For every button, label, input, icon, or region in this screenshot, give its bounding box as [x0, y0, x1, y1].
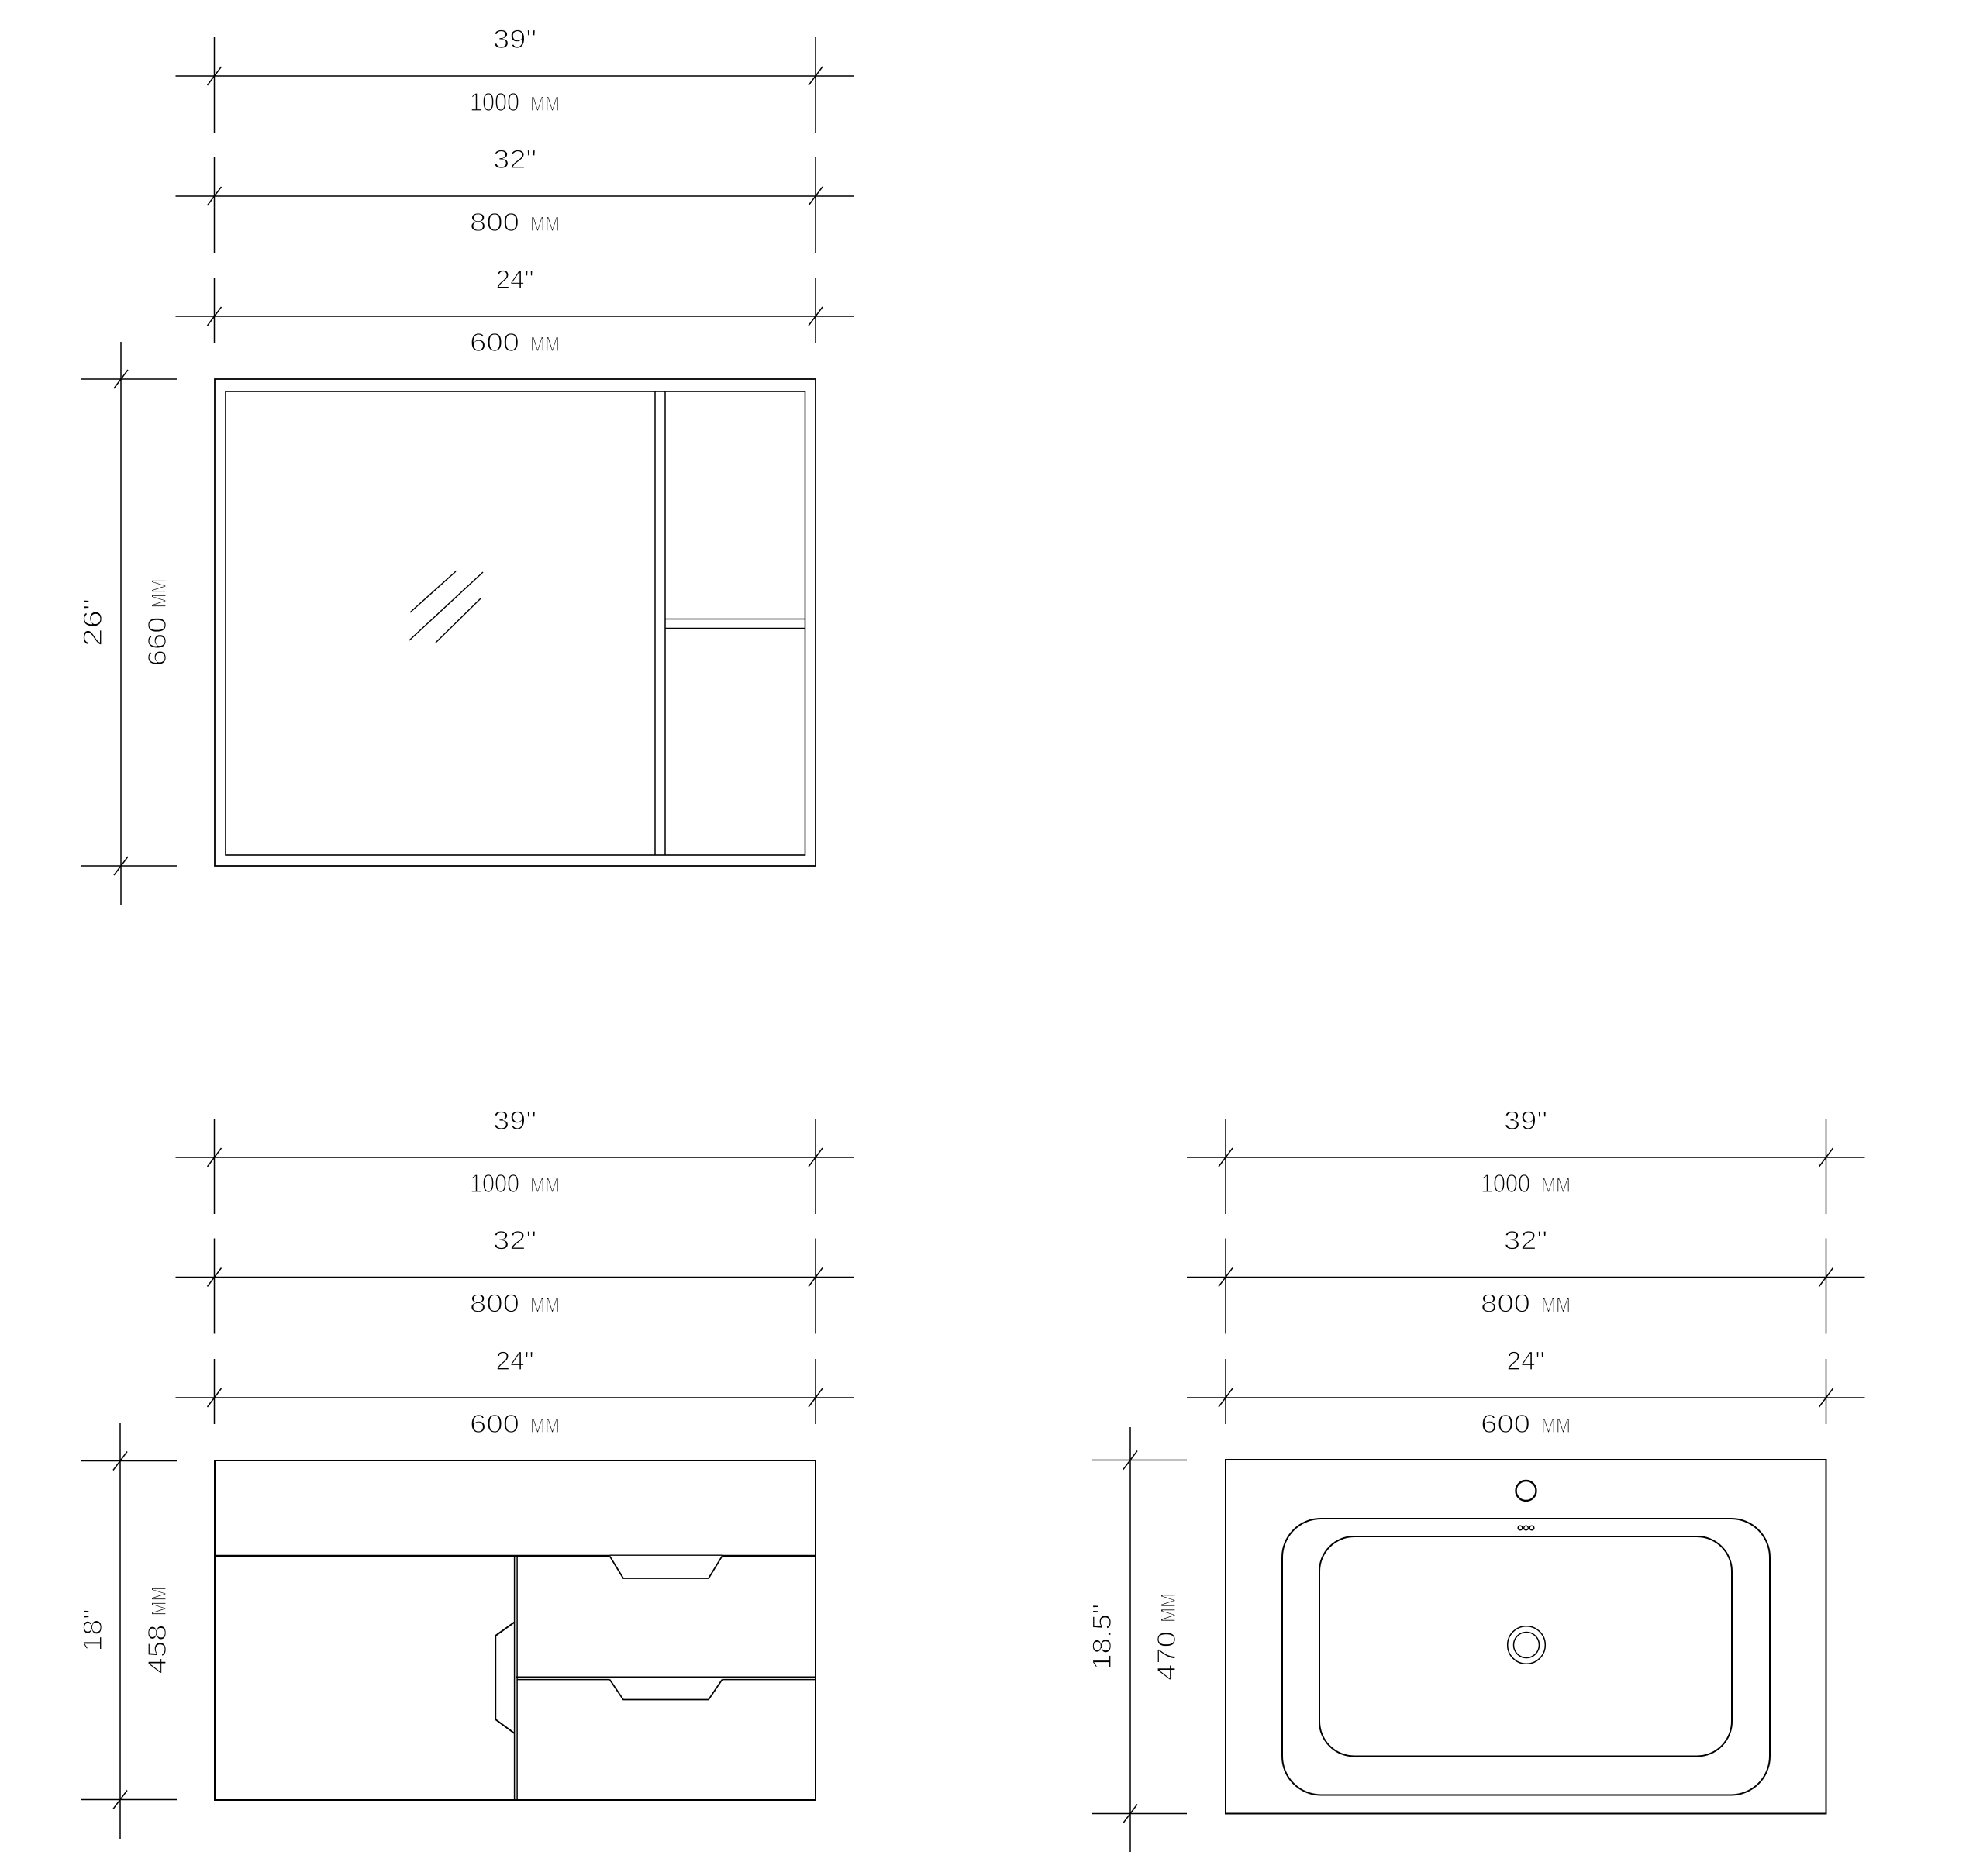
svg-text:MM: MM — [1157, 1593, 1180, 1623]
svg-text:1000: 1000 — [470, 1169, 519, 1198]
svg-text:MM: MM — [530, 333, 560, 356]
svg-text:MM: MM — [1541, 1174, 1571, 1197]
svg-text:600: 600 — [1481, 1409, 1530, 1438]
svg-text:1000: 1000 — [1481, 1169, 1530, 1198]
svg-text:18.5": 18.5" — [1088, 1604, 1117, 1670]
svg-text:MM: MM — [530, 1294, 560, 1317]
svg-text:470: 470 — [1152, 1631, 1181, 1681]
svg-text:MM: MM — [530, 1414, 560, 1437]
svg-text:MM: MM — [1541, 1414, 1571, 1437]
svg-text:24": 24" — [1507, 1347, 1545, 1376]
svg-text:MM: MM — [530, 92, 560, 116]
svg-text:458: 458 — [143, 1625, 171, 1674]
svg-text:39": 39" — [493, 25, 536, 54]
svg-text:32": 32" — [493, 145, 536, 174]
svg-text:600: 600 — [470, 328, 519, 357]
svg-text:800: 800 — [470, 208, 519, 236]
svg-text:MM: MM — [530, 1174, 560, 1197]
svg-text:26": 26" — [78, 598, 108, 647]
svg-text:24": 24" — [496, 1347, 534, 1376]
svg-text:18": 18" — [78, 1609, 108, 1652]
svg-text:MM: MM — [530, 212, 560, 236]
svg-text:39": 39" — [493, 1106, 536, 1136]
svg-text:39": 39" — [1504, 1106, 1547, 1136]
svg-text:32": 32" — [493, 1226, 536, 1256]
svg-text:660: 660 — [143, 617, 171, 667]
svg-text:MM: MM — [147, 1587, 171, 1616]
svg-text:24": 24" — [496, 265, 534, 295]
svg-text:MM: MM — [1541, 1294, 1571, 1317]
svg-text:32": 32" — [1504, 1226, 1547, 1256]
svg-text:MM: MM — [147, 579, 171, 609]
svg-text:600: 600 — [470, 1409, 519, 1438]
svg-text:800: 800 — [1481, 1289, 1530, 1318]
svg-text:800: 800 — [470, 1289, 519, 1318]
svg-text:1000: 1000 — [470, 88, 519, 116]
